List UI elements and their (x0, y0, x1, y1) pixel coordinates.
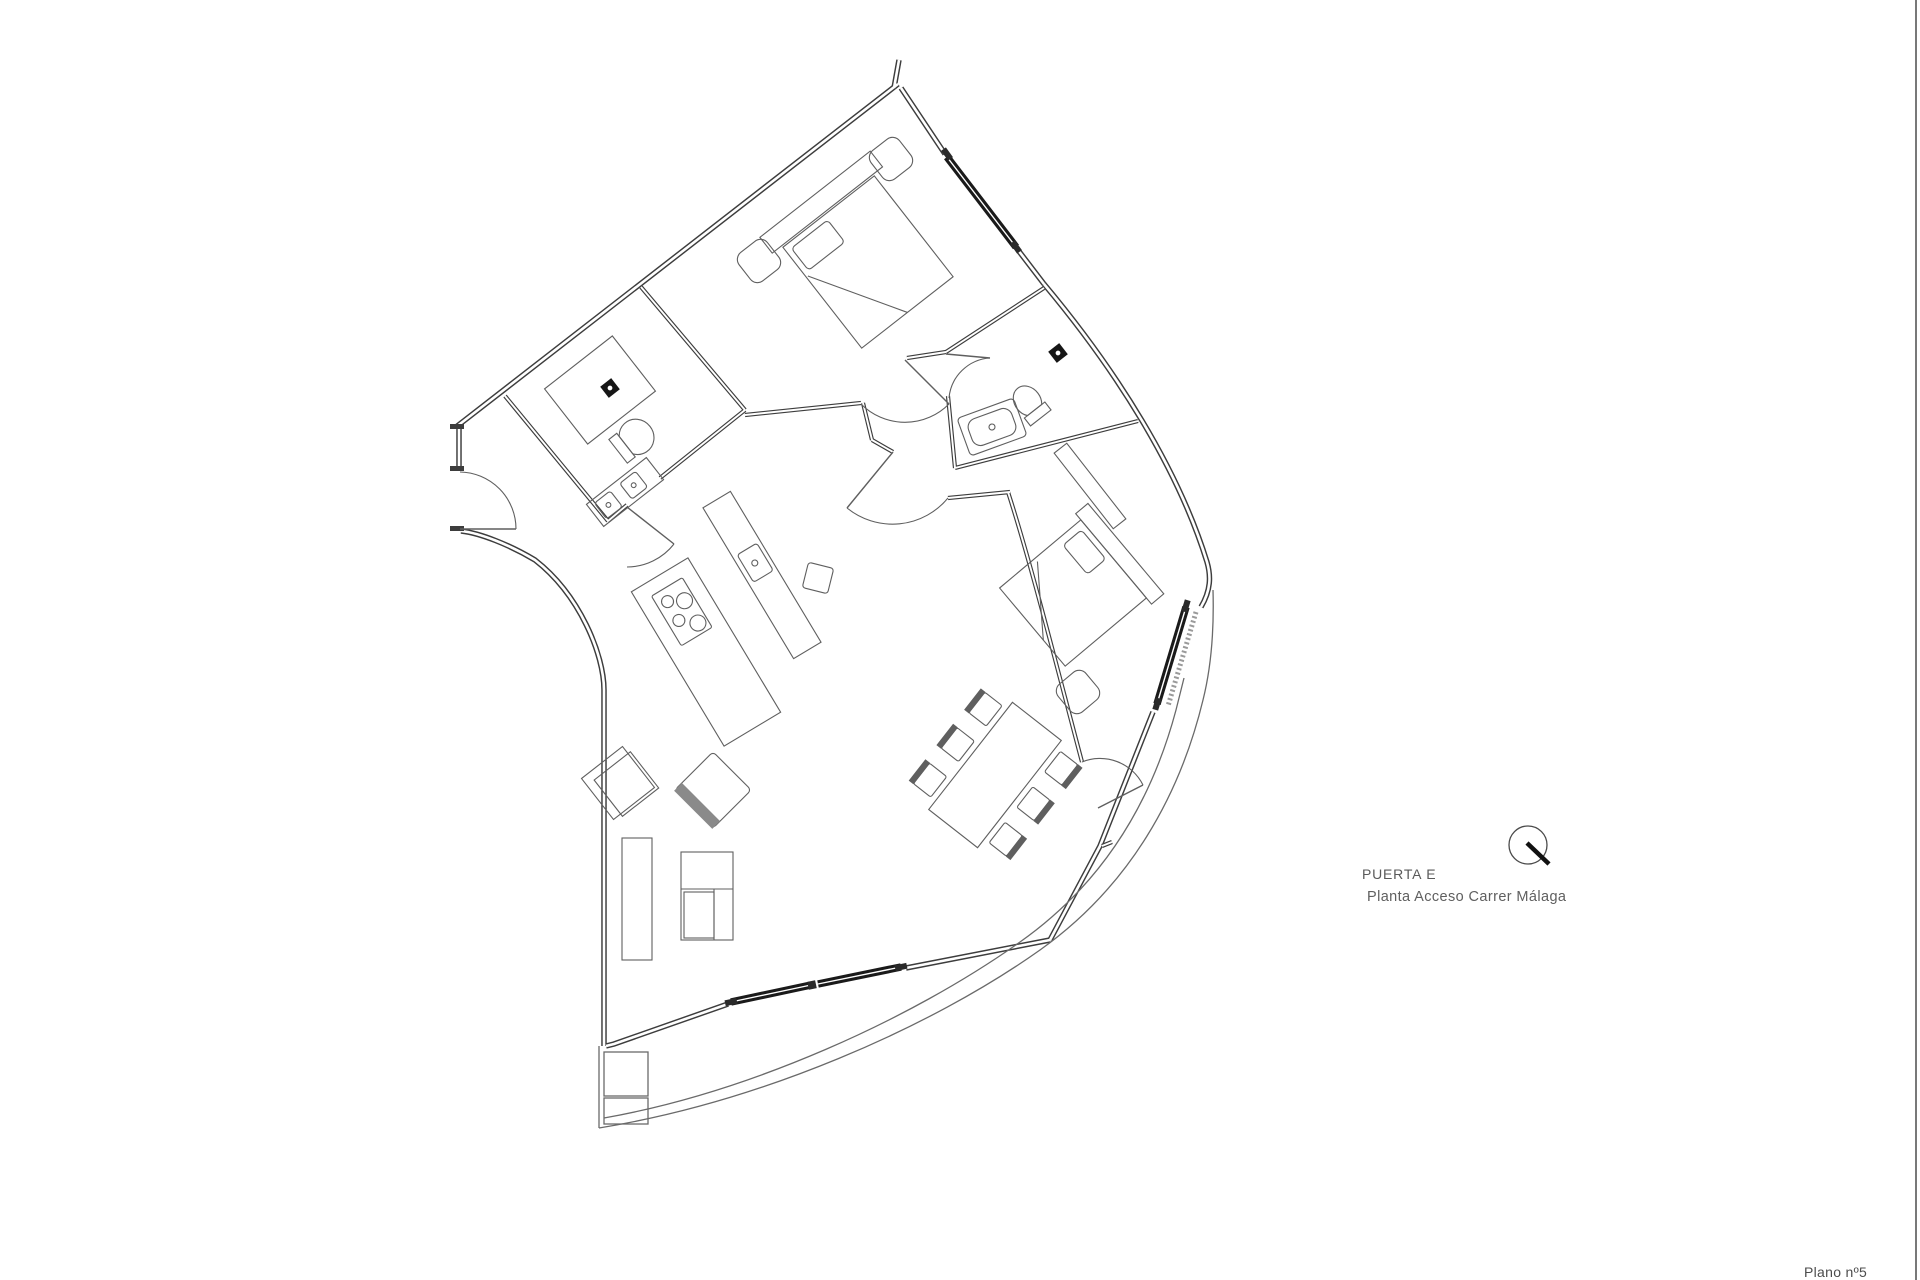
bathroom1-door (627, 507, 674, 567)
bedroom1-door (861, 360, 949, 422)
bathroom2-door (946, 354, 990, 398)
coffee-table (582, 745, 659, 822)
vanity-2 (957, 398, 1027, 456)
dining-set (903, 682, 1088, 868)
floor-drain-2 (1048, 343, 1068, 363)
bed-1 (760, 151, 963, 355)
plan-subtitle: Planta Acceso Carrer Málaga (1367, 889, 1566, 905)
wardrobe-strip (1054, 443, 1126, 528)
doors (460, 354, 1143, 808)
kitchen-counter (703, 491, 821, 658)
dining-chairs (909, 689, 1081, 859)
sheet-number-label: Plano nº5 (1804, 1264, 1867, 1280)
living-door (847, 452, 948, 524)
armchair (674, 752, 751, 829)
interior-walls (505, 287, 1138, 846)
drawing-sheet: PUERTA E Planta Acceso Carrer Málaga Pla… (0, 0, 1920, 1280)
floor-plan-drawing (0, 0, 1920, 1280)
sheet-border (1915, 0, 1917, 1280)
terrace-edge (599, 590, 1213, 1128)
toilet-1 (607, 412, 661, 465)
windows (725, 147, 1191, 1006)
plan-title: PUERTA E (1362, 866, 1436, 882)
furniture (545, 134, 1164, 960)
vanity-1 (586, 458, 663, 527)
north-indicator-icon (1509, 826, 1549, 864)
shower-1 (545, 336, 656, 444)
entry-door (460, 472, 516, 529)
floor-drain-1 (600, 378, 620, 398)
kitchen-island (631, 558, 780, 746)
nightstand-1b (734, 236, 785, 287)
sideboard (622, 838, 652, 960)
kitchen-stool (802, 562, 834, 594)
tv-unit (681, 852, 733, 940)
